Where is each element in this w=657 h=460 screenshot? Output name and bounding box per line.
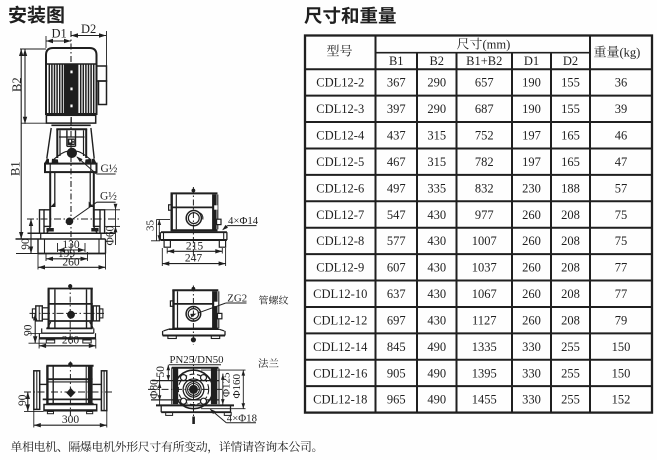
svg-text:(kg): (kg) [620, 46, 641, 60]
svg-text:430: 430 [427, 313, 446, 327]
svg-text:255: 255 [561, 366, 580, 380]
svg-text:90: 90 [17, 394, 29, 406]
svg-text:260: 260 [62, 257, 80, 269]
svg-text:197: 197 [522, 155, 541, 169]
svg-text:247: 247 [185, 253, 203, 265]
svg-text:752: 752 [475, 129, 494, 143]
svg-text:Φ80: Φ80 [148, 379, 160, 399]
svg-text:208: 208 [561, 234, 580, 248]
svg-text:36: 36 [615, 76, 628, 90]
svg-text:B1+B2: B1+B2 [466, 54, 502, 68]
svg-text:208: 208 [561, 208, 580, 222]
svg-text:77: 77 [615, 261, 628, 275]
svg-text:CDL12-8: CDL12-8 [316, 234, 364, 248]
svg-text:CDL12-4: CDL12-4 [316, 129, 365, 143]
svg-text:330: 330 [522, 393, 541, 407]
svg-text:260: 260 [522, 261, 541, 275]
svg-text:90: 90 [23, 324, 35, 336]
svg-text:150: 150 [612, 340, 631, 354]
svg-text:D1: D1 [52, 27, 67, 41]
svg-text:CDL12-18: CDL12-18 [313, 393, 367, 407]
svg-text:430: 430 [427, 208, 446, 222]
svg-text:CDL12-5: CDL12-5 [316, 155, 364, 169]
svg-text:315: 315 [427, 129, 446, 143]
svg-text:Φ60: Φ60 [105, 225, 117, 245]
svg-text:905: 905 [387, 366, 406, 380]
svg-text:D1: D1 [524, 54, 539, 68]
svg-text:77: 77 [615, 287, 628, 301]
svg-text:255: 255 [561, 340, 580, 354]
svg-text:39: 39 [615, 102, 628, 116]
svg-text:497: 497 [387, 181, 406, 195]
svg-text:687: 687 [475, 102, 494, 116]
svg-text:697: 697 [387, 313, 406, 327]
svg-text:CDL12-16: CDL12-16 [313, 366, 367, 380]
svg-text:430: 430 [427, 234, 446, 248]
svg-text:490: 490 [427, 366, 446, 380]
svg-text:215: 215 [186, 240, 204, 252]
svg-text:75: 75 [615, 208, 628, 222]
svg-text:300: 300 [62, 414, 80, 426]
svg-text:290: 290 [427, 102, 446, 116]
svg-text:330: 330 [522, 340, 541, 354]
svg-text:260: 260 [522, 313, 541, 327]
svg-text:607: 607 [387, 261, 406, 275]
svg-text:430: 430 [427, 261, 446, 275]
svg-text:B1: B1 [9, 161, 23, 176]
svg-text:467: 467 [387, 155, 406, 169]
svg-text:90: 90 [20, 238, 32, 250]
svg-text:782: 782 [475, 155, 494, 169]
svg-text:208: 208 [561, 287, 580, 301]
svg-text:230: 230 [522, 181, 541, 195]
svg-text:208: 208 [561, 313, 580, 327]
svg-text:G½: G½ [101, 163, 118, 175]
svg-text:335: 335 [427, 181, 446, 195]
svg-text:197: 197 [522, 129, 541, 143]
svg-text:CDL12-7: CDL12-7 [316, 208, 364, 222]
svg-text:260: 260 [62, 335, 80, 347]
svg-text:152: 152 [612, 393, 631, 407]
svg-text:50: 50 [155, 366, 167, 378]
svg-text:430: 430 [427, 287, 446, 301]
svg-text:260: 260 [522, 287, 541, 301]
svg-text:CDL12-6: CDL12-6 [316, 181, 364, 195]
svg-text:255: 255 [561, 393, 580, 407]
svg-text:965: 965 [387, 393, 406, 407]
svg-text:188: 188 [561, 181, 580, 195]
svg-text:1007: 1007 [472, 234, 497, 248]
svg-text:35: 35 [145, 220, 157, 232]
svg-text:CDL12-9: CDL12-9 [316, 261, 364, 275]
svg-text:832: 832 [475, 181, 494, 195]
svg-text:G½: G½ [100, 191, 117, 203]
svg-text:165: 165 [561, 155, 580, 169]
svg-text:1037: 1037 [472, 261, 497, 275]
svg-text:547: 547 [387, 208, 406, 222]
svg-text:637: 637 [387, 287, 406, 301]
svg-text:260: 260 [522, 208, 541, 222]
svg-text:155: 155 [561, 102, 580, 116]
svg-text:CDL12-3: CDL12-3 [316, 102, 364, 116]
svg-text:190: 190 [522, 102, 541, 116]
svg-text:D2: D2 [563, 54, 578, 68]
svg-text:CDL12-10: CDL12-10 [313, 287, 367, 301]
svg-text:B2: B2 [429, 54, 444, 68]
svg-text:1455: 1455 [472, 393, 497, 407]
svg-text:397: 397 [387, 102, 406, 116]
svg-text:845: 845 [387, 340, 406, 354]
svg-text:79: 79 [615, 313, 628, 327]
svg-text:1127: 1127 [472, 313, 497, 327]
svg-text:1395: 1395 [472, 366, 497, 380]
svg-text:57: 57 [615, 181, 628, 195]
svg-text:D2: D2 [81, 22, 96, 36]
svg-text:190: 190 [522, 76, 541, 90]
svg-text:47: 47 [615, 155, 628, 169]
svg-text:Φ160: Φ160 [231, 373, 243, 398]
svg-text:B1: B1 [389, 54, 404, 68]
svg-text:437: 437 [387, 129, 406, 143]
svg-text:155: 155 [561, 76, 580, 90]
svg-text:490: 490 [427, 340, 446, 354]
svg-text:1335: 1335 [472, 340, 497, 354]
svg-text:165: 165 [561, 129, 580, 143]
svg-text:208: 208 [561, 261, 580, 275]
svg-text:290: 290 [427, 76, 446, 90]
svg-text:577: 577 [387, 234, 406, 248]
svg-text:75: 75 [615, 234, 628, 248]
svg-text:657: 657 [475, 76, 494, 90]
svg-text:977: 977 [475, 208, 494, 222]
svg-text:260: 260 [522, 234, 541, 248]
svg-text:CDL12-12: CDL12-12 [313, 313, 367, 327]
svg-text:367: 367 [387, 76, 406, 90]
svg-text:(mm): (mm) [483, 38, 511, 52]
svg-text:CDL12-2: CDL12-2 [316, 76, 364, 90]
svg-text:46: 46 [615, 129, 628, 143]
svg-text:150: 150 [612, 366, 631, 380]
svg-text:CDL12-14: CDL12-14 [313, 340, 368, 354]
svg-text:490: 490 [427, 393, 446, 407]
svg-text:1067: 1067 [472, 287, 497, 301]
svg-text:B2: B2 [10, 77, 24, 92]
svg-text:330: 330 [522, 366, 541, 380]
svg-text:315: 315 [427, 155, 446, 169]
